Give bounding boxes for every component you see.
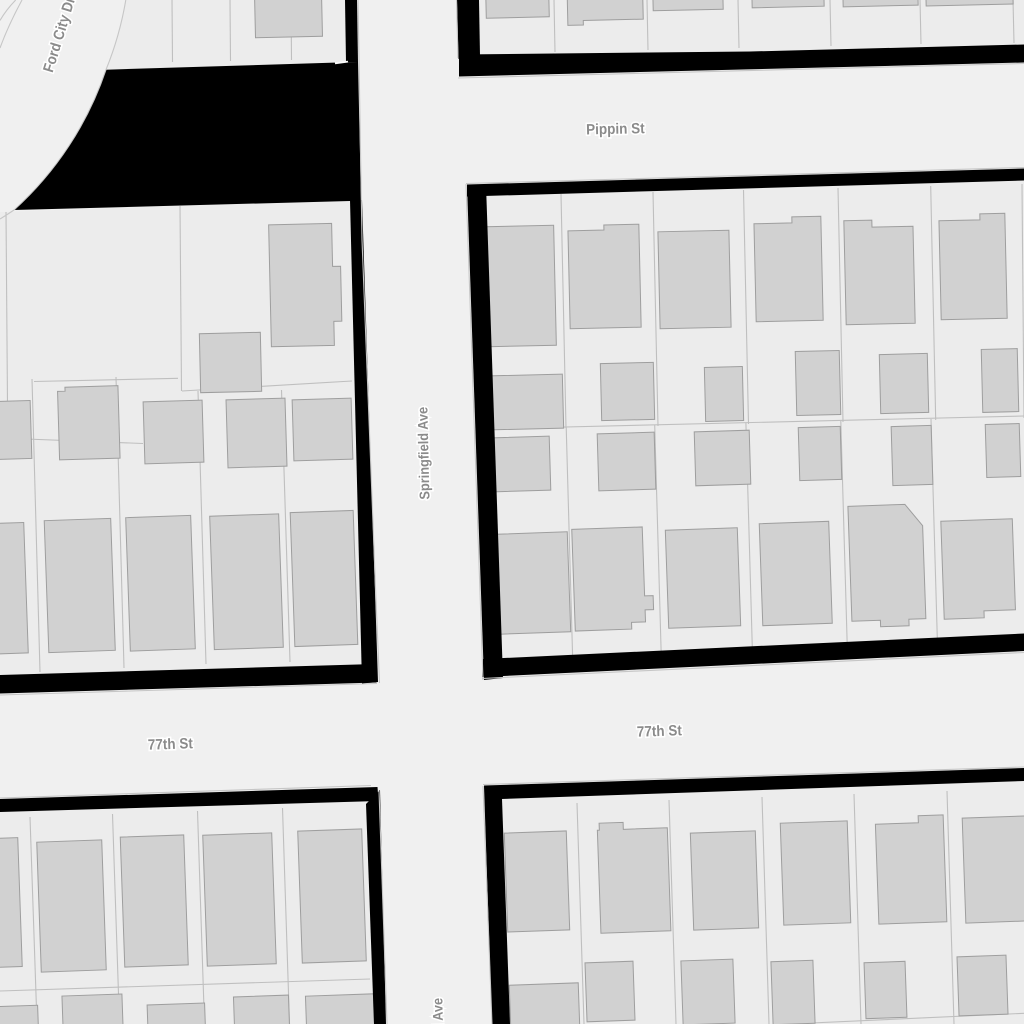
- svg-text:77th St: 77th St: [148, 736, 194, 754]
- svg-text:77th St: 77th St: [637, 723, 683, 741]
- svg-text:Springfield Ave: Springfield Ave: [430, 997, 449, 1024]
- svg-text:Pippin St: Pippin St: [586, 121, 645, 139]
- svg-text:Springfield Ave: Springfield Ave: [415, 406, 433, 500]
